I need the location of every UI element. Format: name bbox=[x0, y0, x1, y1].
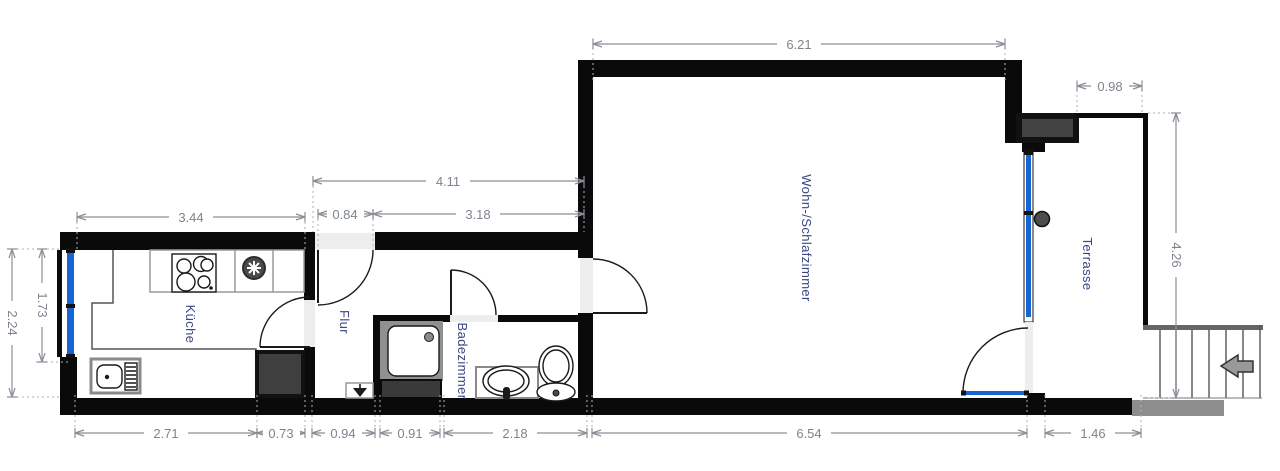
dim-fridge-nook-bottom: 0.73 bbox=[268, 426, 293, 441]
kitchen-door-opening bbox=[304, 300, 315, 347]
kitchen-sink-icon bbox=[91, 359, 140, 393]
dim-living-room-width: 6.21 bbox=[786, 37, 811, 52]
door-swing-icon bbox=[318, 250, 373, 305]
dim-terrace-bottom: 1.46 bbox=[1080, 426, 1105, 441]
washer-icon bbox=[381, 380, 441, 398]
dim-living-bottom: 6.54 bbox=[796, 426, 821, 441]
stove-icon bbox=[172, 254, 216, 292]
dim-window-left: 1.73 bbox=[35, 292, 50, 317]
dim-terrace-right: 4.26 bbox=[1169, 242, 1184, 267]
extractor-fan-icon bbox=[243, 257, 265, 279]
fridge-icon bbox=[255, 350, 305, 398]
shower-icon bbox=[380, 321, 443, 381]
window-icon bbox=[1026, 155, 1031, 317]
entrance-door-opening bbox=[313, 233, 375, 249]
room-label-badezimmer: Badezimmer bbox=[455, 323, 470, 400]
room-label-flur: Flur bbox=[337, 310, 352, 334]
dim-entry-door: 0.84 bbox=[332, 207, 357, 222]
dim-bath-bottom: 2.18 bbox=[502, 426, 527, 441]
door-swing-icon bbox=[451, 270, 496, 315]
bathroom-fixtures bbox=[380, 321, 575, 401]
window-icon bbox=[66, 249, 75, 358]
door-knob-icon bbox=[1035, 212, 1050, 227]
dim-hall-top: 3.18 bbox=[465, 207, 490, 222]
dim-kitchen-top: 3.44 bbox=[178, 210, 203, 225]
dim-hall-top-total: 4.11 bbox=[436, 174, 460, 189]
dim-kitchen-left: 2.24 bbox=[5, 310, 20, 335]
dim-hall-bottom: 0.94 bbox=[330, 426, 355, 441]
door-swing-icon bbox=[260, 297, 310, 347]
room-labels: Küche Flur Badezimmer Wohn-/Schlafzimmer… bbox=[183, 174, 1095, 400]
stairs-landing bbox=[1132, 400, 1224, 416]
dim-terrace-top: 0.98 bbox=[1097, 79, 1122, 94]
stairs-icon bbox=[1132, 325, 1263, 416]
room-label-kueche: Küche bbox=[183, 305, 198, 344]
floor-plan-svg: 6.21 0.98 4.11 0.84 3.18 3.44 1.73 2.24 … bbox=[0, 0, 1280, 471]
walls bbox=[57, 60, 1148, 415]
room-label-terrasse: Terrasse bbox=[1080, 237, 1095, 290]
dim-shower-bottom: 0.91 bbox=[397, 426, 422, 441]
dim-kitchen-bottom: 2.71 bbox=[153, 426, 178, 441]
glass-door-icon bbox=[961, 328, 1029, 393]
bathroom-door-opening bbox=[450, 315, 498, 322]
room-label-wohn-schlafzimmer: Wohn-/Schlafzimmer bbox=[799, 174, 814, 302]
terrace-door-opening bbox=[1025, 322, 1033, 393]
toilet-icon bbox=[537, 346, 575, 401]
washbasin-icon bbox=[476, 366, 538, 400]
door-swing-icon bbox=[593, 259, 647, 313]
floor-plan: 6.21 0.98 4.11 0.84 3.18 3.44 1.73 2.24 … bbox=[0, 0, 1280, 471]
entrance-arrow-icon bbox=[346, 383, 373, 398]
living-room-door-opening bbox=[580, 258, 593, 313]
